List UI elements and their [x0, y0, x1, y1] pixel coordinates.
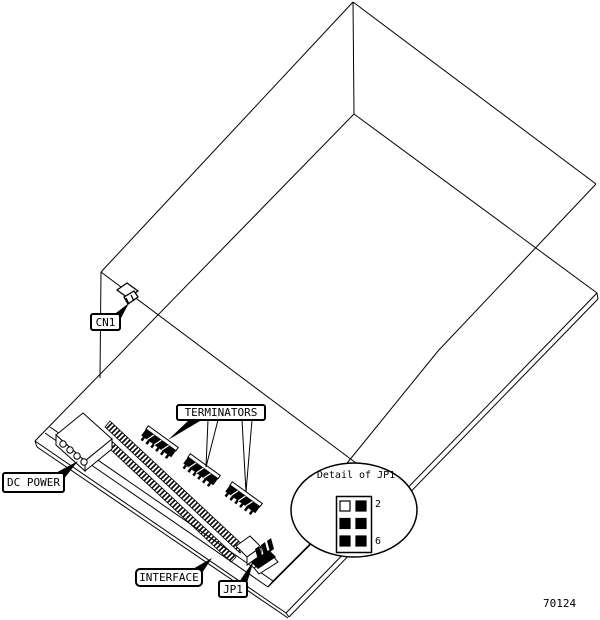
- enclosure-cover-outline: [35, 2, 597, 478]
- dc-power-connector: [56, 413, 112, 471]
- callout-dc-power-label: DC POWER: [7, 477, 60, 488]
- callout-jp1-label: JP1: [223, 584, 243, 595]
- callout-interface-label: INTERFACE: [139, 572, 199, 583]
- terminators-pointer-2: [206, 420, 218, 467]
- jumper-pin-closed: [356, 519, 366, 529]
- diagram-canvas: [0, 0, 600, 620]
- callout-dc-power: DC POWER: [2, 472, 65, 493]
- jumper-pin-closed: [356, 536, 366, 546]
- figure-drive-diagram: CN1 DC POWER TERMINATORS INTERFACE JP1 D…: [0, 0, 600, 620]
- figure-number: 70124: [543, 597, 576, 610]
- terminator-strip-3: [223, 482, 262, 517]
- callout-terminators: TERMINATORS: [176, 404, 266, 421]
- jumper-pin-open: [340, 501, 350, 511]
- detail-pin-label-bottom: 6: [375, 536, 381, 548]
- callout-interface: INTERFACE: [135, 568, 203, 587]
- detail-pin-label-top: 2: [375, 499, 381, 511]
- callout-jp1: JP1: [218, 580, 248, 598]
- terminators-pointer-1: [168, 420, 200, 440]
- detail-title: Detail of JP1: [313, 470, 399, 482]
- jumper-pin-closed: [340, 536, 350, 546]
- jumper-pin-closed: [356, 501, 366, 511]
- terminator-strip-2: [181, 454, 220, 489]
- callout-terminators-label: TERMINATORS: [185, 407, 258, 418]
- jumper-pin-closed: [340, 519, 350, 529]
- callout-cn1-label: CN1: [96, 317, 116, 328]
- callout-cn1: CN1: [90, 313, 121, 331]
- terminators-pointer-3: [242, 420, 252, 492]
